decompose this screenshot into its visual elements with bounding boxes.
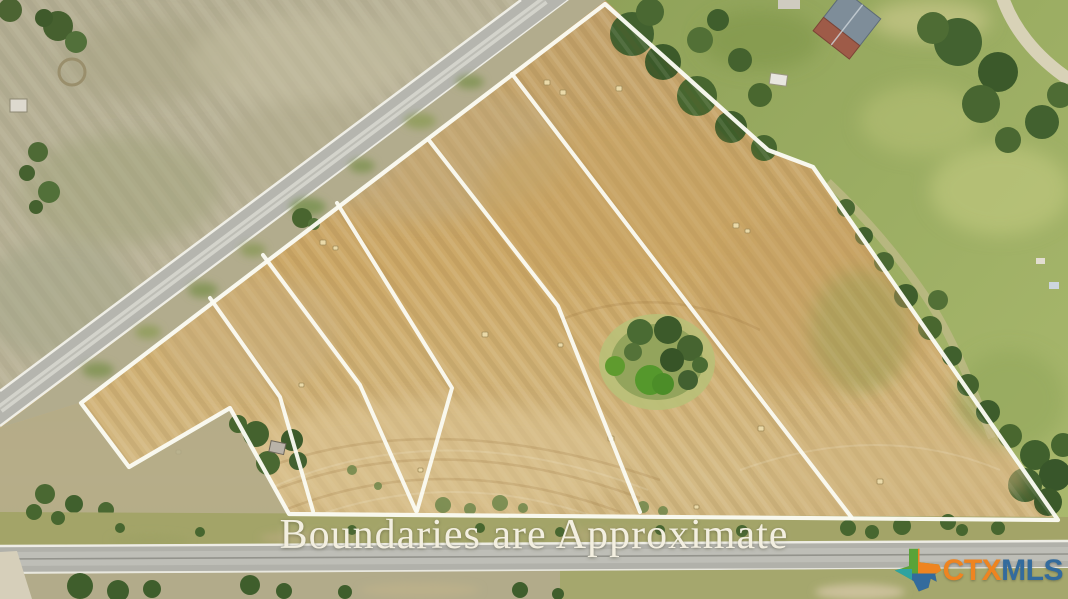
far-right-vehicle (1049, 282, 1059, 289)
aerial-listing-photo: Boundaries are Approximate CTX MLS (0, 0, 1068, 599)
tree-island (599, 314, 715, 410)
white-trailer (769, 73, 787, 86)
pasture-shed (10, 99, 27, 112)
far-right-structure (1036, 258, 1045, 264)
homestead-house (269, 441, 286, 455)
small-shed (778, 0, 800, 9)
aerial-photo-canvas (0, 0, 1068, 599)
